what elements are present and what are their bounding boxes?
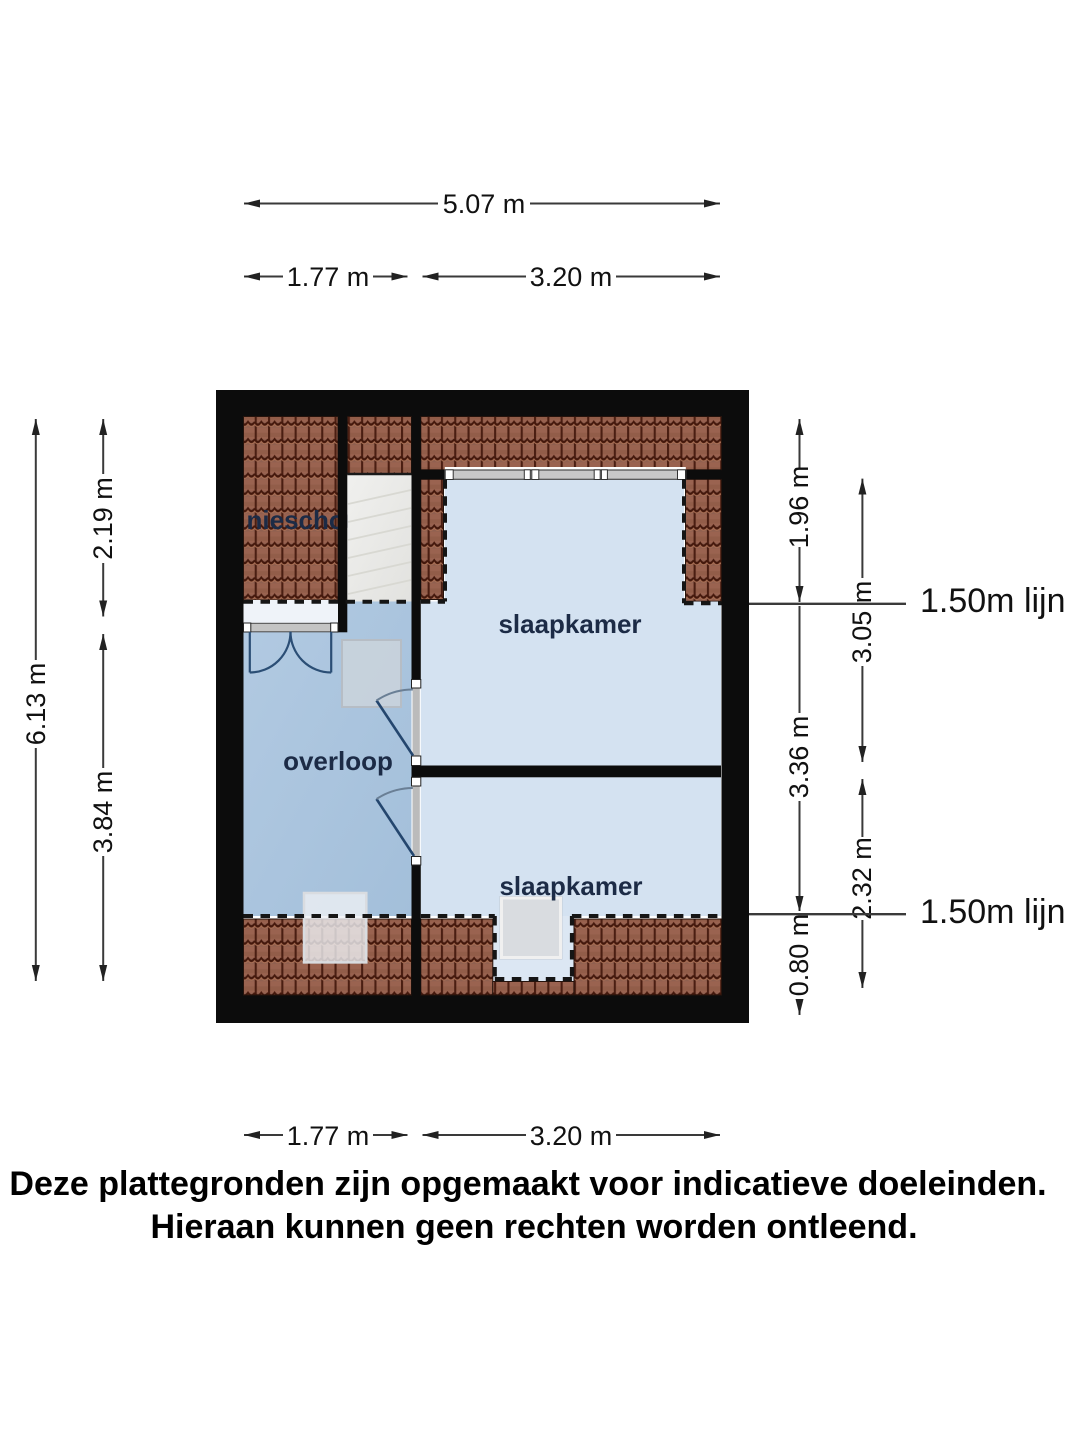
svg-text:3.36 m: 3.36 m — [784, 716, 814, 799]
svg-text:nieschot: nieschot — [247, 505, 354, 535]
svg-text:6.13 m: 6.13 m — [21, 663, 51, 746]
svg-text:3.84 m: 3.84 m — [88, 771, 118, 854]
svg-text:1.50m lijn: 1.50m lijn — [920, 893, 1066, 931]
svg-text:Hieraan kunnen geen rechten wo: Hieraan kunnen geen rechten worden ontle… — [150, 1208, 917, 1246]
svg-text:3.20 m: 3.20 m — [530, 1121, 613, 1151]
svg-text:3.20 m: 3.20 m — [530, 262, 613, 292]
svg-text:2.32 m: 2.32 m — [847, 837, 877, 920]
svg-text:0.80 m: 0.80 m — [784, 914, 814, 997]
svg-text:1.77 m: 1.77 m — [287, 1121, 370, 1151]
svg-text:3.05 m: 3.05 m — [847, 581, 877, 664]
svg-text:1.77 m: 1.77 m — [287, 262, 370, 292]
svg-text:overloop: overloop — [283, 746, 393, 776]
svg-text:1.50m lijn: 1.50m lijn — [920, 582, 1066, 620]
svg-text:2.19 m: 2.19 m — [88, 477, 118, 560]
svg-text:slaapkamer: slaapkamer — [498, 609, 641, 639]
svg-text:slaapkamer: slaapkamer — [499, 871, 642, 901]
svg-text:5.07 m: 5.07 m — [443, 189, 526, 219]
svg-text:1.96 m: 1.96 m — [784, 466, 814, 549]
svg-text:Deze plattegronden zijn opgema: Deze plattegronden zijn opgemaakt voor i… — [9, 1165, 1046, 1203]
